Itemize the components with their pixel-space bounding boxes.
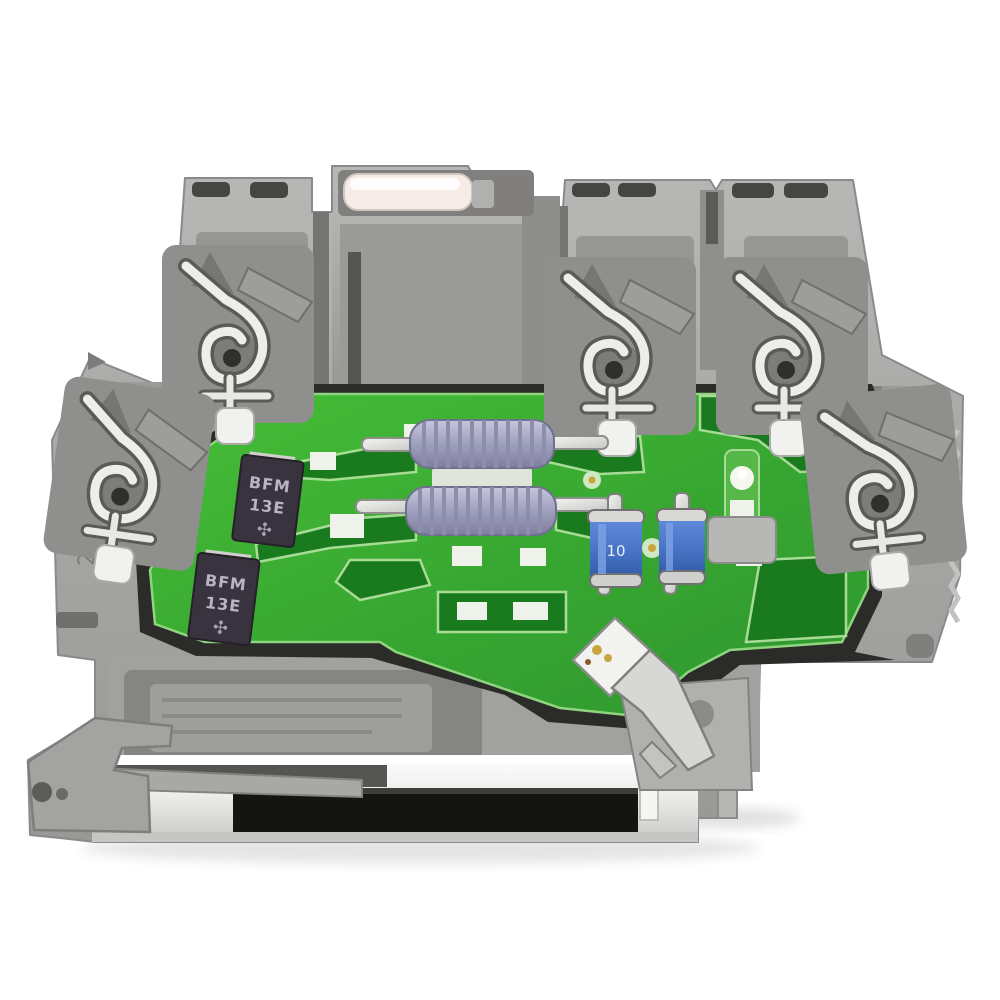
resistor-lead-right bbox=[546, 436, 608, 449]
gdt-cap-top bbox=[588, 510, 644, 524]
gas-discharge-tube-right bbox=[657, 493, 707, 595]
smd-block bbox=[708, 517, 776, 563]
product-photo: 2 bbox=[0, 0, 1000, 1000]
groove-1 bbox=[313, 212, 329, 392]
diode-logo: ✣ bbox=[212, 617, 230, 640]
rail-bottom-edge bbox=[92, 832, 698, 842]
terminal-block-illustration: 2 bbox=[0, 0, 1000, 1000]
gdt-cap-bottom bbox=[659, 571, 705, 584]
gdt-cap-top bbox=[657, 509, 707, 523]
gdt-highlight bbox=[598, 524, 606, 574]
marker-highlight bbox=[350, 178, 460, 190]
gdt-highlight bbox=[666, 523, 673, 571]
rail-top-highlight bbox=[92, 755, 698, 764]
groove-3-slot bbox=[706, 192, 718, 244]
center-block-face bbox=[340, 224, 554, 392]
gdt-body bbox=[659, 521, 705, 573]
smd-diode-bottom: BFM 13E ✣ bbox=[188, 549, 261, 646]
smd-diode-top: BFM 13E ✣ bbox=[232, 451, 305, 548]
led-hotspot bbox=[737, 469, 747, 479]
latch-hole bbox=[32, 782, 52, 802]
marker-step bbox=[472, 180, 494, 208]
gas-discharge-tube-left: 10 bbox=[588, 494, 644, 596]
solder-fleck-2 bbox=[604, 654, 612, 662]
clamp-top-middle bbox=[544, 257, 696, 456]
diode-logo: ✣ bbox=[256, 519, 274, 542]
gdt-cap-bottom bbox=[590, 574, 642, 587]
solder-fleck-3 bbox=[585, 659, 591, 665]
corner-hole bbox=[906, 634, 934, 658]
gdt-marking: 10 bbox=[606, 542, 625, 560]
latch-hole-small bbox=[56, 788, 68, 800]
resistor-lead-left bbox=[356, 500, 411, 513]
leftwing-slot bbox=[56, 612, 98, 628]
solder-fleck-1 bbox=[592, 645, 602, 655]
